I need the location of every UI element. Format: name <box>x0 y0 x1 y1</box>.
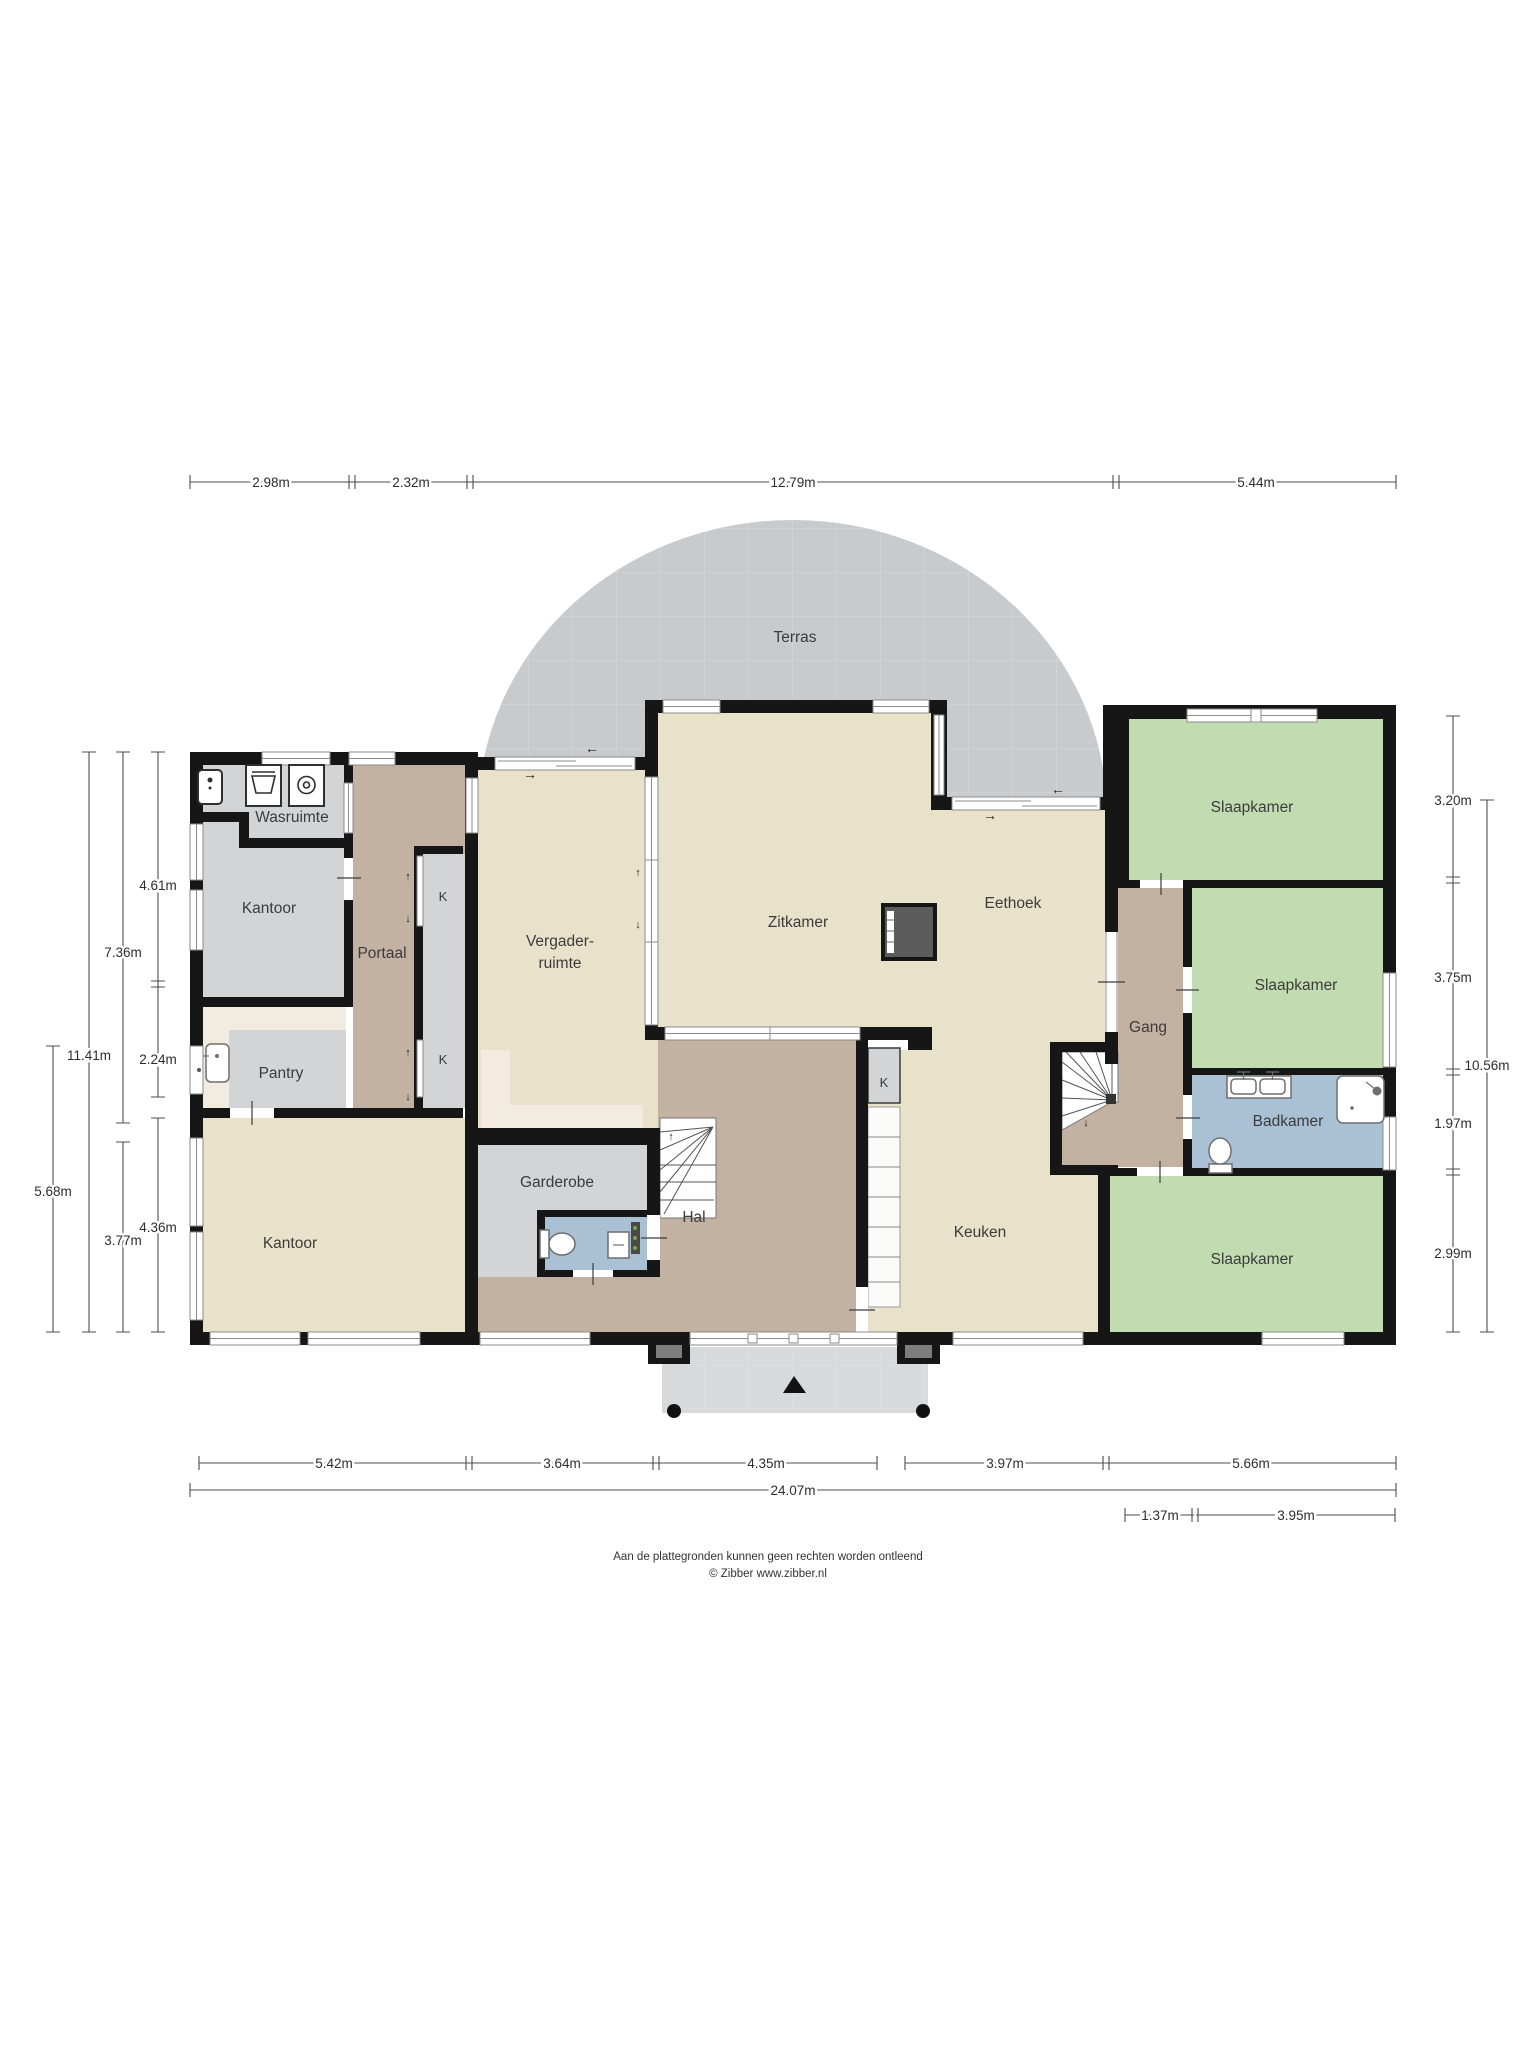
porch-post-dot <box>916 1404 930 1418</box>
pantry-sink-icon <box>206 1044 229 1082</box>
dim-left-1141: 11.41m <box>67 1048 111 1063</box>
shower-icon <box>1337 1076 1384 1123</box>
sink-icon <box>1260 1079 1285 1094</box>
dim-right-299: 2.99m <box>1434 1246 1472 1261</box>
door-arrow-icon: ↑ <box>405 871 411 883</box>
dimensions-top: 2.98m 2.32m 12.79m 5.44m <box>190 475 1396 490</box>
dim-top-3: 12.79m <box>770 475 815 490</box>
dim-top-1: 2.98m <box>252 475 290 490</box>
dim-bottom-395: 3.95m <box>1277 1508 1315 1523</box>
dim-left-736: 7.36m <box>104 945 142 960</box>
room-label-pantry: Pantry <box>259 1065 304 1082</box>
room-label-zitkamer: Zitkamer <box>768 914 828 931</box>
room-label-garderobe: Garderobe <box>520 1174 594 1191</box>
room-label-kast-keuken: K <box>880 1075 889 1090</box>
slide-arrow-icon: ← <box>585 740 599 756</box>
dim-bottom-542: 5.42m <box>315 1456 353 1471</box>
room-label-kantoor-onder: Kantoor <box>263 1235 317 1252</box>
room-zitkamer <box>658 713 947 1040</box>
pantry-counter <box>229 1007 346 1030</box>
dim-right-1056: 10.56m <box>1464 1058 1509 1073</box>
slide-arrow-icon: ← <box>1051 781 1065 797</box>
door-arrow-icon: ↓ <box>405 1091 411 1103</box>
footer-disclaimer: Aan de plattegronden kunnen geen rechten… <box>613 1551 922 1563</box>
footer-copyright: © Zibber www.zibber.nl <box>709 1568 827 1580</box>
dryer-icon <box>289 765 324 806</box>
room-label-wasruimte: Wasruimte <box>255 809 329 826</box>
dim-bottom-137: 1.37m <box>1141 1508 1179 1523</box>
dimensions-left: 4.61m 7.36m 11.41m 2.24m 5.68m 4.36m 3.7… <box>34 752 177 1332</box>
room-label-portaal: Portaal <box>357 945 406 962</box>
dim-top-2: 2.32m <box>392 475 430 490</box>
toilet-tank-icon <box>1209 1164 1232 1173</box>
dim-bottom-435: 4.35m <box>747 1456 785 1471</box>
toilet-icon <box>1209 1138 1231 1164</box>
room-label-gang: Gang <box>1129 1019 1167 1036</box>
stairs-gang: ↓ <box>1062 1052 1118 1165</box>
slide-arrow-icon: → <box>523 766 537 782</box>
dim-bottom-364: 3.64m <box>543 1456 581 1471</box>
room-label-badkamer: Badkamer <box>1253 1113 1324 1130</box>
room-label-vergaderruimte: Vergader- <box>526 933 594 950</box>
floor-plan-page: Terras <box>0 0 1536 2048</box>
room-label-slaapkamer-3: Slaapkamer <box>1211 1251 1294 1268</box>
toilet-tank-icon <box>540 1230 549 1258</box>
toilet-icon <box>549 1233 575 1255</box>
room-label-keuken: Keuken <box>954 1224 1007 1241</box>
door-arrow-icon: ↑ <box>405 1047 411 1059</box>
stairs-down-arrow-icon: ↓ <box>1083 1117 1089 1129</box>
room-label-eethoek: Eethoek <box>985 895 1042 912</box>
dim-right-375: 3.75m <box>1434 970 1472 985</box>
room-label-hal: Hal <box>682 1209 705 1226</box>
room-label-kast-onder: K <box>439 1052 448 1067</box>
dim-bottom-566: 5.66m <box>1232 1456 1270 1471</box>
room-label-terras: Terras <box>773 629 816 646</box>
dimensions-bottom: 5.42m 3.64m 4.35m 3.97m 5.66m 24.07m 1.3… <box>190 1456 1396 1523</box>
slide-arrow-icon: → <box>983 807 997 823</box>
dim-left-224: 2.24m <box>139 1052 177 1067</box>
dim-top-4: 5.44m <box>1237 475 1275 490</box>
floor-plan: Terras <box>0 0 1536 2048</box>
porch-post-dot <box>667 1404 681 1418</box>
sink-icon <box>1231 1079 1256 1094</box>
washer-icon <box>246 765 281 806</box>
dimensions-right: 3.20m 3.75m 10.56m 1.97m 2.99m <box>1434 716 1509 1332</box>
stairs-hal: ↑ <box>660 1118 716 1218</box>
dim-right-320: 3.20m <box>1434 793 1472 808</box>
dim-left-377: 3.77m <box>104 1233 142 1248</box>
footer: Aan de plattegronden kunnen geen rechten… <box>613 1551 922 1580</box>
room-label-vergaderruimte2: ruimte <box>538 955 581 972</box>
room-label-slaapkamer-1: Slaapkamer <box>1211 799 1294 816</box>
dim-left-568: 5.68m <box>34 1184 72 1199</box>
dim-right-197: 1.97m <box>1434 1116 1472 1131</box>
door-arrow-icon: ↓ <box>405 913 411 925</box>
stairs-up-arrow-icon: ↑ <box>668 1131 674 1143</box>
dim-left-461: 4.61m <box>139 878 177 893</box>
room-kantoor-onder <box>203 1118 465 1332</box>
fireplace-icon <box>883 905 935 959</box>
dim-left-436: 4.36m <box>139 1220 177 1235</box>
dim-bottom-total: 24.07m <box>770 1483 815 1498</box>
room-fills <box>196 713 1383 1332</box>
door-arrow-icon: ↑ <box>635 867 641 879</box>
exterior-door <box>190 1046 203 1094</box>
dim-bottom-397: 3.97m <box>986 1456 1024 1471</box>
vergader-counter <box>481 1105 643 1128</box>
room-label-kantoor-boven: Kantoor <box>242 900 296 917</box>
room-label-kast-boven: K <box>439 889 448 904</box>
room-label-slaapkamer-2: Slaapkamer <box>1255 977 1338 994</box>
door-arrow-icon: ↓ <box>635 919 641 931</box>
